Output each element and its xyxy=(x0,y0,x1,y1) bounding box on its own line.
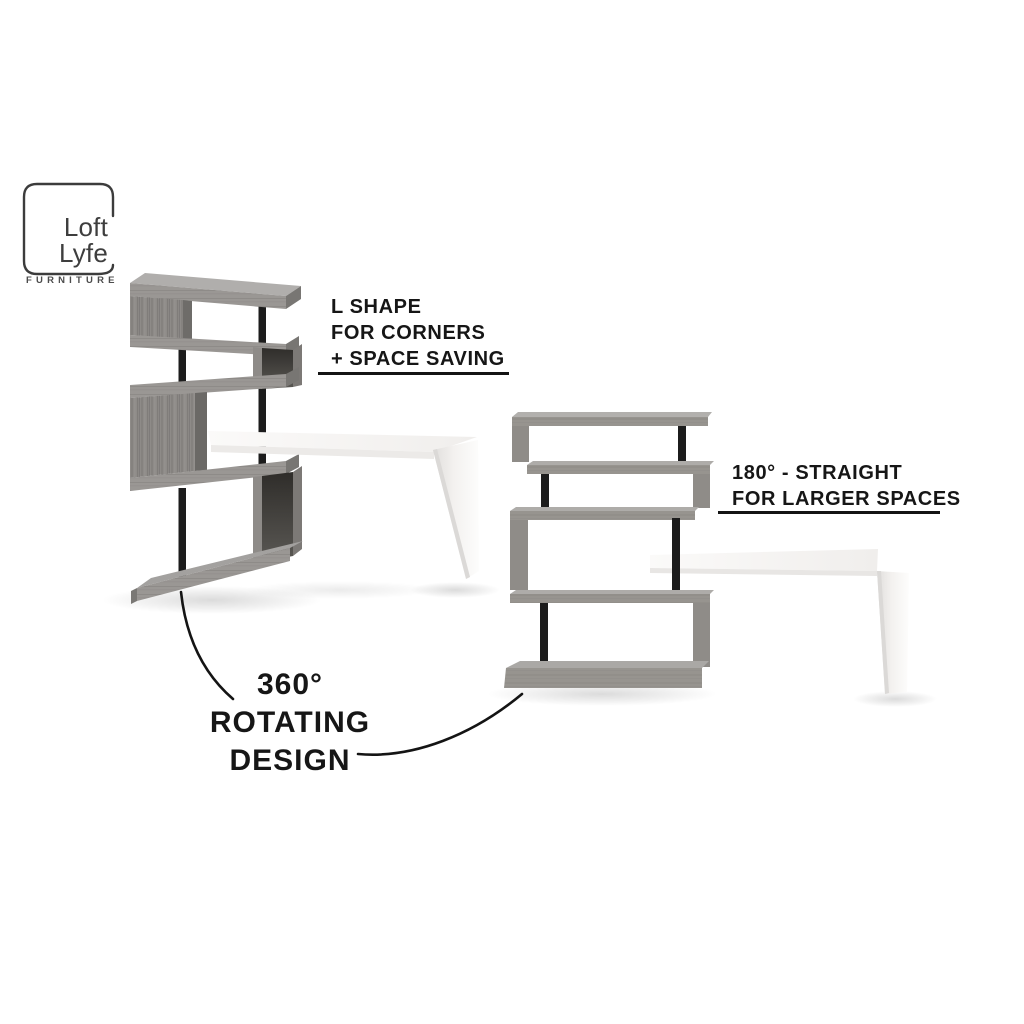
desk-top xyxy=(650,549,878,571)
shelf-wall-edge xyxy=(183,300,192,340)
shelf-slab xyxy=(512,417,708,426)
callout-l-shape-line1: L SHAPE xyxy=(331,294,505,320)
shelf-wall-edge xyxy=(195,392,207,471)
shelf-wall xyxy=(130,393,195,478)
shelf-slab xyxy=(510,594,710,603)
product-marketing-image: Loft Lyfe FURNITURE xyxy=(0,0,1024,1024)
shelf-pole xyxy=(678,424,686,464)
shelf-slab xyxy=(512,412,712,417)
shelf-slab xyxy=(510,590,714,594)
callout-l-shape-line3: + SPACE SAVING xyxy=(331,346,505,372)
shelf-base xyxy=(504,668,702,688)
callout-straight-underline xyxy=(718,511,940,514)
floor-shadow xyxy=(853,691,937,707)
shelf-wall xyxy=(253,476,262,563)
shelf-pole xyxy=(541,471,549,509)
shelf-slab xyxy=(527,461,714,465)
shelf-wall xyxy=(512,426,529,462)
shelf-pole xyxy=(259,386,267,466)
callout-l-shape: L SHAPE FOR CORNERS + SPACE SAVING xyxy=(331,294,505,372)
callout-rotating-line1: 360° xyxy=(179,666,401,704)
shelf-pole xyxy=(672,518,680,590)
callout-l-shape-underline xyxy=(318,372,509,375)
shelf-wall xyxy=(130,296,183,339)
shelf-slab xyxy=(527,465,710,474)
floor-shadow xyxy=(245,581,435,599)
callout-rotating: 360° ROTATING DESIGN xyxy=(179,666,401,780)
callout-straight-line2: FOR LARGER SPACES xyxy=(732,486,961,512)
shelf-wall xyxy=(693,603,710,667)
shelf-base xyxy=(137,541,303,588)
shelf-pole xyxy=(179,488,187,578)
shelf-pole xyxy=(540,602,548,669)
callout-straight: 180° - STRAIGHT FOR LARGER SPACES xyxy=(732,460,961,512)
floor-shadow xyxy=(410,582,500,598)
shelf-wall xyxy=(693,474,710,508)
shelf-slab xyxy=(510,511,695,520)
callout-straight-line1: 180° - STRAIGHT xyxy=(732,460,961,486)
callout-rotating-line2: ROTATING xyxy=(179,704,401,742)
straight-configuration-illustration xyxy=(487,412,937,707)
shelf-slab xyxy=(510,507,699,511)
shelf-base xyxy=(506,661,709,668)
callout-rotating-line3: DESIGN xyxy=(179,742,401,780)
shelf-wall xyxy=(510,520,528,590)
callout-l-shape-line2: FOR CORNERS xyxy=(331,320,505,346)
